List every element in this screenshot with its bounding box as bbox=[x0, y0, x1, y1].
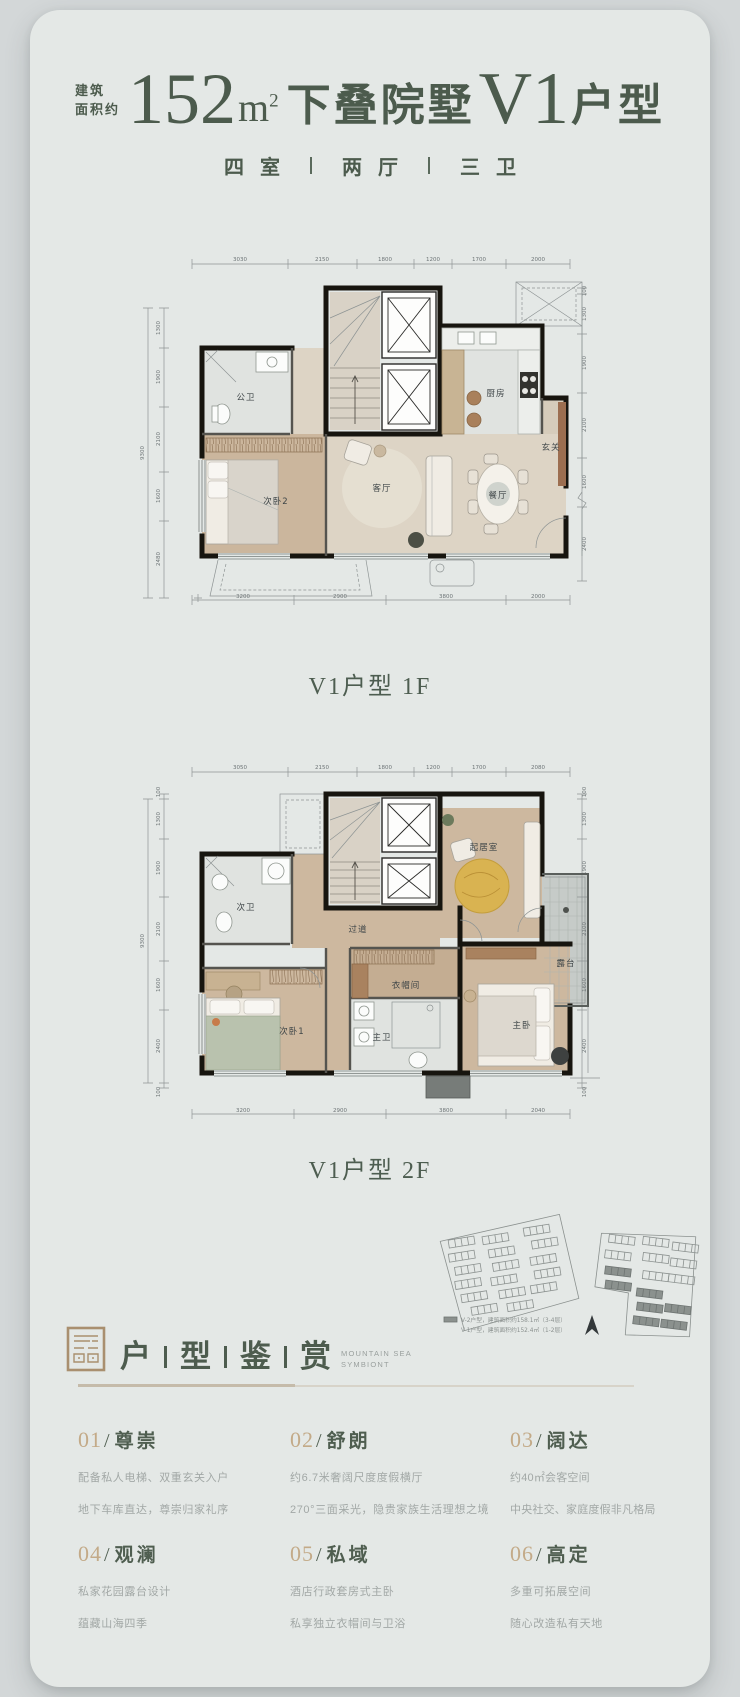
room-label-corridor: 过道 bbox=[348, 924, 367, 935]
dim-label: 3030 bbox=[233, 257, 247, 263]
dim-label: 2400 bbox=[582, 1039, 588, 1053]
dim-total-label: 9300 bbox=[140, 934, 146, 948]
site-legend-line2: V-1户型，建筑面积约152.4㎡（1-2层） bbox=[461, 1326, 566, 1334]
site-cluster-right bbox=[590, 1225, 702, 1342]
dim-label: 100 bbox=[156, 1086, 162, 1097]
dim-label: 3200 bbox=[236, 1108, 250, 1114]
area-number: 152 bbox=[128, 67, 236, 132]
feature-slash: / bbox=[316, 1544, 322, 1567]
feature-title: 高定 bbox=[547, 1540, 591, 1567]
area-prefix: 建筑 面积约 bbox=[75, 81, 120, 120]
feature-desc-line: 约6.7米奢阔尺度度假横厅 bbox=[290, 1469, 500, 1485]
feature-title: 私域 bbox=[327, 1540, 371, 1567]
room-label-living: 客厅 bbox=[372, 483, 391, 494]
dim-label: 100 bbox=[582, 285, 588, 296]
divider-bar bbox=[164, 1346, 167, 1368]
area-unit: m2 bbox=[238, 88, 279, 128]
plan-caption-1f: V1户型 1F bbox=[30, 666, 710, 701]
dim-label: 2000 bbox=[531, 257, 545, 263]
section-title-char: 户 bbox=[120, 1341, 151, 1372]
feature-block-kuoda: 03 / 阔达 约40㎡会客空间 中央社交、家庭度假非凡格局 bbox=[510, 1426, 690, 1517]
dim-label: 2100 bbox=[156, 922, 162, 936]
feature-block-gaoding: 06 / 高定 多重可拓展空间 随心改造私有天地 bbox=[510, 1540, 690, 1631]
feature-number: 06 bbox=[510, 1541, 534, 1567]
feature-slash: / bbox=[536, 1544, 542, 1567]
dim-label: 100 bbox=[582, 1086, 588, 1097]
site-legend-line1: V-2户型，建筑面积约158.1㎡（3-4层） bbox=[461, 1316, 566, 1324]
feature-number: 03 bbox=[510, 1427, 534, 1453]
section-title-char: 鉴 bbox=[240, 1341, 271, 1372]
feature-slash: / bbox=[104, 1544, 110, 1567]
feature-desc-line: 中央社交、家庭度假非凡格局 bbox=[510, 1501, 690, 1517]
divider-rest bbox=[295, 1385, 634, 1387]
section-title-char: 型 bbox=[180, 1341, 211, 1372]
room-summary-baths: 三卫 bbox=[460, 151, 532, 180]
area-prefix-line1: 建筑 bbox=[75, 81, 120, 101]
section-title: 户 型 鉴 赏 bbox=[120, 1341, 331, 1372]
room-label-terrace: 露台 bbox=[556, 958, 575, 969]
room-label-master: 主卧 bbox=[512, 1020, 531, 1031]
room-label-foyer: 玄关 bbox=[541, 442, 560, 453]
feature-desc-line: 酒店行政套房式主卧 bbox=[290, 1583, 500, 1599]
dim-label: 3800 bbox=[439, 1108, 453, 1114]
site-plan-image: V-2户型，建筑面积约158.1㎡（3-4层） V-1户型，建筑面积约152.4… bbox=[430, 1205, 710, 1355]
staircase-icon bbox=[330, 798, 380, 904]
feature-block-siyu: 05 / 私域 酒店行政套房式主卧 私享独立衣帽间与卫浴 bbox=[290, 1540, 500, 1631]
feature-number: 04 bbox=[78, 1541, 102, 1567]
room-label-bath: 公卫 bbox=[236, 393, 255, 403]
feature-block-zunchong: 01 / 尊崇 配备私人电梯、双重玄关入户 地下车库直达，尊崇归家礼序 bbox=[78, 1426, 288, 1517]
dim-label: 2100 bbox=[156, 432, 162, 446]
feature-desc-line: 约40㎡会客空间 bbox=[510, 1469, 690, 1485]
feature-slash: / bbox=[536, 1430, 542, 1453]
dim-label: 1600 bbox=[156, 978, 162, 992]
title-suffix: 户型 bbox=[571, 84, 665, 128]
dim-label: 1900 bbox=[582, 861, 588, 875]
feature-desc-line: 地下车库直达，尊崇归家礼序 bbox=[78, 1501, 288, 1517]
title-product-type: 下叠院墅 bbox=[287, 84, 475, 128]
north-arrow-icon bbox=[585, 1315, 599, 1335]
dim-label: 2040 bbox=[531, 1108, 545, 1114]
divider-bar bbox=[428, 157, 430, 174]
feature-slash: / bbox=[104, 1430, 110, 1453]
section-divider bbox=[78, 1384, 634, 1387]
room-label-closet: 衣帽间 bbox=[392, 980, 421, 991]
feature-desc-line: 私家花园露台设计 bbox=[78, 1583, 288, 1599]
feature-desc-line: 随心改造私有天地 bbox=[510, 1615, 690, 1631]
section-subtitle-en: MOUNTAIN SEA SYMBIONT bbox=[341, 1348, 412, 1371]
dim-label: 2100 bbox=[582, 418, 588, 432]
dim-label: 1700 bbox=[472, 765, 486, 771]
title-unit-code: V1 bbox=[479, 66, 569, 133]
yard-outline-1f bbox=[194, 560, 474, 602]
floor-plan-1f-image: 3030 2150 1800 1200 1700 2000 1300 1900 … bbox=[130, 248, 610, 616]
section-subtitle-line1: MOUNTAIN SEA bbox=[341, 1348, 412, 1359]
dim-label: 1600 bbox=[582, 475, 588, 489]
feature-heading: 03 / 阔达 bbox=[510, 1426, 690, 1453]
dim-label: 1300 bbox=[156, 321, 162, 335]
brochure-card: 建筑 面积约 152 m2 下叠院墅 V1 户型 四室 两厅 三卫 bbox=[30, 10, 710, 1687]
dim-label: 1200 bbox=[426, 257, 440, 263]
feature-number: 05 bbox=[290, 1541, 314, 1567]
feature-desc-line: 蕴藏山海四季 bbox=[78, 1615, 288, 1631]
feature-block-guanlan: 04 / 观澜 私家花园露台设计 蕴藏山海四季 bbox=[78, 1540, 288, 1631]
site-legend: V-2户型，建筑面积约158.1㎡（3-4层） V-1户型，建筑面积约152.4… bbox=[444, 1316, 566, 1334]
dim-label: 2400 bbox=[582, 537, 588, 551]
feature-heading: 02 / 舒朗 bbox=[290, 1426, 500, 1453]
divider-bar bbox=[224, 1346, 227, 1368]
dim-label: 1700 bbox=[472, 257, 486, 263]
dim-label: 100 bbox=[156, 786, 162, 797]
room-summary-halls: 两厅 bbox=[342, 151, 414, 180]
feature-heading: 04 / 观澜 bbox=[78, 1540, 288, 1567]
section-header: 户 型 鉴 赏 MOUNTAIN SEA SYMBIONT bbox=[66, 1326, 412, 1372]
dim-label: 1900 bbox=[156, 370, 162, 384]
room-label-dining: 餐厅 bbox=[488, 491, 507, 501]
room-label-masterbath: 主卫 bbox=[372, 1032, 391, 1043]
headline: 建筑 面积约 152 m2 下叠院墅 V1 户型 bbox=[30, 66, 710, 130]
dim-label: 1300 bbox=[156, 812, 162, 826]
area-unit-sup: 2 bbox=[269, 90, 279, 111]
divider-bar bbox=[284, 1346, 287, 1368]
brochure-page: { "colors":{"accent_green":"#4c5b4d","ac… bbox=[0, 0, 740, 1697]
dim-total-label: 9300 bbox=[140, 446, 146, 460]
feature-heading: 01 / 尊崇 bbox=[78, 1426, 288, 1453]
dim-label: 2900 bbox=[333, 1108, 347, 1114]
room-label-kitchen: 厨房 bbox=[486, 388, 505, 399]
dim-label: 3800 bbox=[439, 594, 453, 600]
dim-label: 1600 bbox=[156, 489, 162, 503]
feature-slash: / bbox=[316, 1430, 322, 1453]
staircase-icon bbox=[330, 292, 380, 430]
seal-icon bbox=[66, 1326, 106, 1372]
feature-title: 舒朗 bbox=[327, 1426, 371, 1453]
feature-desc-line: 配备私人电梯、双重玄关入户 bbox=[78, 1469, 288, 1485]
dim-label: 2080 bbox=[531, 765, 545, 771]
dim-label: 1300 bbox=[582, 812, 588, 826]
room-summary: 四室 两厅 三卫 bbox=[30, 151, 710, 180]
plan-caption-2f: V1户型 2F bbox=[30, 1150, 710, 1185]
room-label-bedroom1: 次卧1 bbox=[279, 1026, 304, 1037]
feature-heading: 05 / 私域 bbox=[290, 1540, 500, 1567]
feature-title: 尊崇 bbox=[115, 1426, 159, 1453]
dim-label: 2150 bbox=[315, 765, 329, 771]
site-cluster-left bbox=[439, 1213, 581, 1332]
feature-block-shulang: 02 / 舒朗 约6.7米奢阔尺度度假横厅 270°三面采光，隐贵家族生活理想之… bbox=[290, 1426, 500, 1517]
dim-label: 1300 bbox=[582, 307, 588, 321]
feature-desc-line: 270°三面采光，隐贵家族生活理想之境 bbox=[290, 1501, 500, 1517]
dim-label: 3200 bbox=[236, 594, 250, 600]
section-title-char: 赏 bbox=[300, 1341, 331, 1372]
room-summary-bedrooms: 四室 bbox=[224, 151, 296, 180]
dim-label: 2900 bbox=[333, 594, 347, 600]
dim-label: 100 bbox=[582, 786, 588, 797]
dim-label: 2150 bbox=[315, 257, 329, 263]
area-prefix-line2: 面积约 bbox=[75, 100, 120, 120]
room-label-bedroom2: 次卧2 bbox=[263, 496, 288, 507]
feature-title: 阔达 bbox=[547, 1426, 591, 1453]
dim-label: 2480 bbox=[156, 552, 162, 566]
room-label-bath2: 次卫 bbox=[236, 902, 255, 913]
feature-number: 01 bbox=[78, 1427, 102, 1453]
feature-title: 观澜 bbox=[115, 1540, 159, 1567]
dim-label: 1800 bbox=[378, 257, 392, 263]
dim-label: 1900 bbox=[156, 861, 162, 875]
feature-number: 02 bbox=[290, 1427, 314, 1453]
floor-plan-2f-image: 3050 2150 1800 1200 1700 2080 100 1300 1… bbox=[130, 758, 610, 1130]
section-subtitle-line2: SYMBIONT bbox=[341, 1359, 412, 1370]
elevator-shaft-icon bbox=[382, 798, 436, 904]
dim-label: 1800 bbox=[378, 765, 392, 771]
dim-label: 1900 bbox=[582, 356, 588, 370]
feature-desc-line: 多重可拓展空间 bbox=[510, 1583, 690, 1599]
feature-desc-line: 私享独立衣帽间与卫浴 bbox=[290, 1615, 500, 1631]
divider-bar bbox=[310, 157, 312, 174]
elevator-shaft-icon bbox=[382, 292, 436, 430]
dim-label: 2000 bbox=[531, 594, 545, 600]
divider-accent bbox=[78, 1384, 295, 1387]
dim-label: 2400 bbox=[156, 1039, 162, 1053]
dim-label: 1200 bbox=[426, 765, 440, 771]
room-label-family: 起居室 bbox=[470, 842, 499, 853]
dim-label: 3050 bbox=[233, 765, 247, 771]
feature-heading: 06 / 高定 bbox=[510, 1540, 690, 1567]
